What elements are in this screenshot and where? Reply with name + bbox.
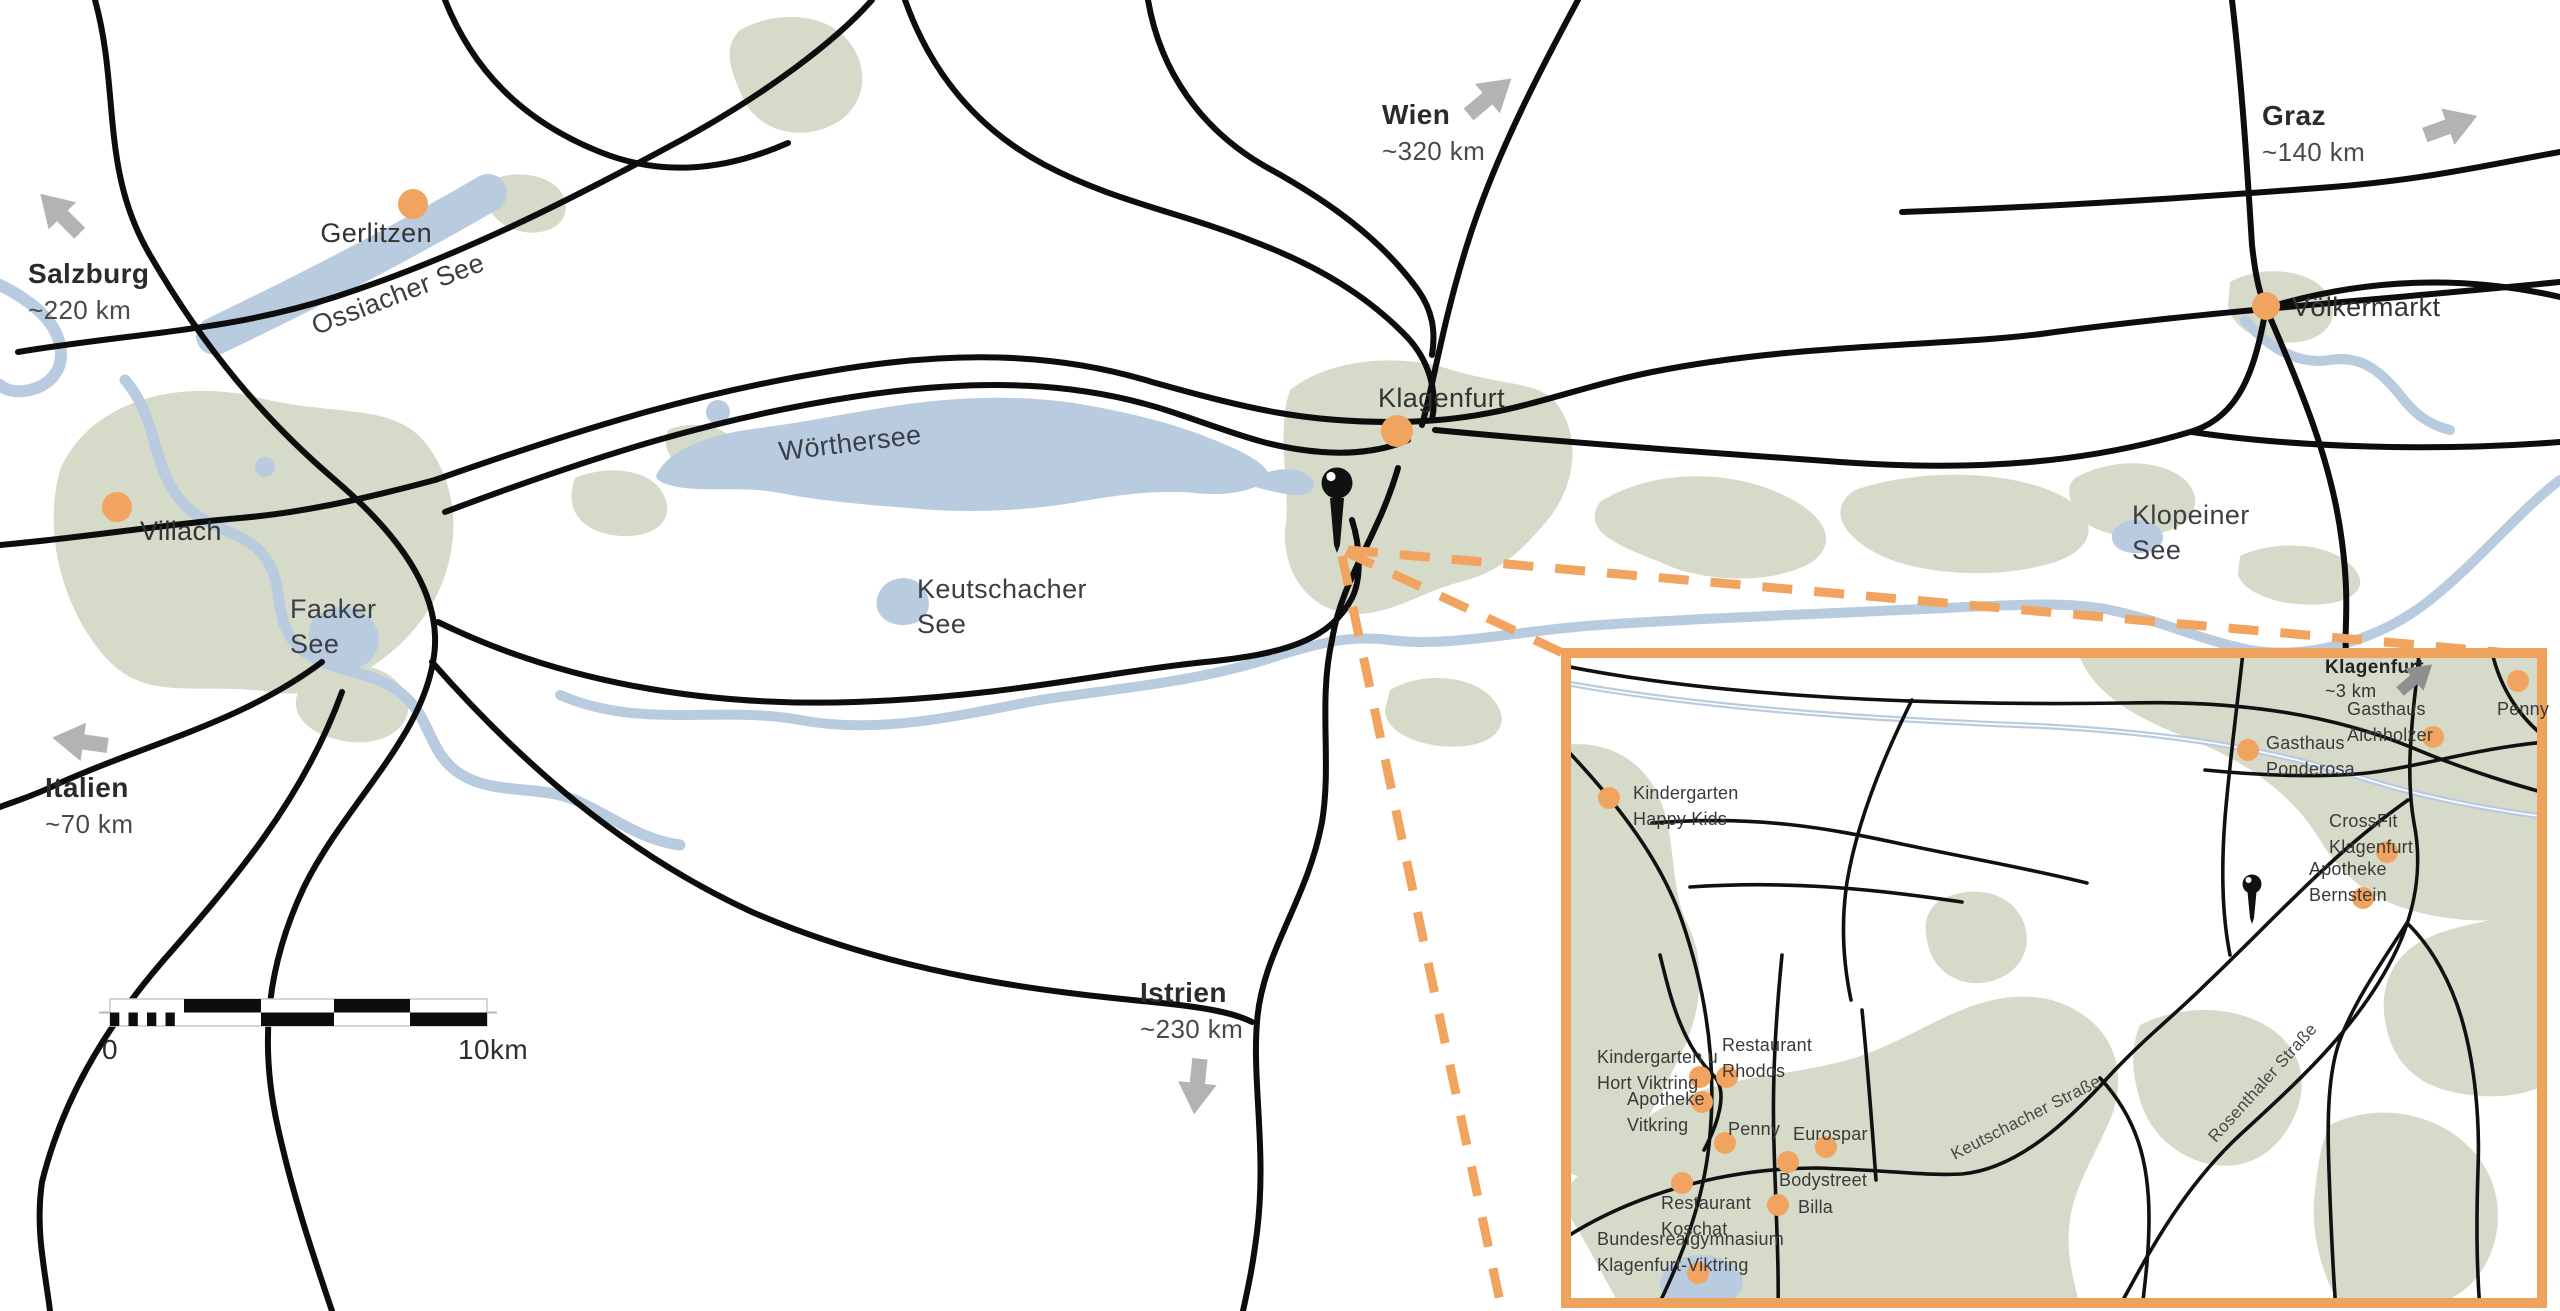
city-label-villach: Villach [140, 514, 222, 549]
poi-label-kindergarten-happy-kids-0: Kindergarten Happy Kids [1633, 780, 1738, 832]
poi-label-apotheke-vitkring-8: Apotheke Vitkring [1627, 1086, 1705, 1138]
poi-dot-billa-12 [1767, 1194, 1789, 1216]
scale-start-label: 0 [102, 1034, 118, 1066]
direction-distance-istrien: ~230 km [1140, 1012, 1243, 1046]
direction-distance-graz: ~140 km [2262, 135, 2365, 169]
poi-label-bundesrealgymnasium-klagenfurt-viktring-14: Bundesrealgymnasium Klagenfurt-Viktring [1597, 1226, 1784, 1278]
direction-arrow-icon-istrien [1172, 1056, 1223, 1116]
direction-distance-wien: ~320 km [1382, 134, 1485, 168]
poi-dot-gasthaus-ponderosa-1 [2237, 739, 2259, 761]
scale-end-label: 10km [458, 1034, 528, 1066]
street-label-rosenthaler-straße: Rosenthaler Straße [2204, 1020, 2321, 1147]
direction-istrien: Istrien~230 km [1140, 975, 1243, 1046]
poi-dot-kindergarten-happy-kids-0 [1598, 787, 1620, 809]
direction-graz: Graz~140 km [2262, 98, 2365, 169]
city-dot-völkermarkt [2252, 292, 2280, 320]
poi-label-crossfit-klagenfurt-4: CrossFit Klagenfurt [2329, 808, 2413, 860]
poi-label-restaurant-rhodos-7: Restaurant Rhodos [1722, 1032, 1812, 1084]
map-canvas: GerlitzenVillachKlagenfurtVölkermarkt Os… [0, 0, 2560, 1311]
direction-distance-italien: ~70 km [45, 807, 133, 841]
poi-label-penny-3: Penny [2497, 696, 2549, 722]
poi-label-bodystreet-11: Bodystreet [1779, 1167, 1867, 1193]
city-label-klagenfurt: Klagenfurt [1378, 381, 1505, 416]
city-label-gerlitzen: Gerlitzen [320, 216, 432, 251]
direction-name-graz: Graz [2262, 98, 2365, 135]
city-label-völkermarkt: Völkermarkt [2292, 290, 2440, 325]
labels-layer: GerlitzenVillachKlagenfurtVölkermarkt Os… [0, 0, 2560, 1311]
direction-salzburg: Salzburg~220 km [28, 256, 149, 327]
street-label-keutschacher-straße: Keutschacher Straße [1948, 1072, 2104, 1165]
poi-label-eurospar-10: Eurospar [1793, 1121, 1868, 1147]
city-dot-klagenfurt [1381, 415, 1413, 447]
direction-distance-salzburg: ~220 km [28, 293, 149, 327]
poi-label-penny-9: Penny [1728, 1116, 1780, 1142]
poi-label-gasthaus-ponderosa-1: Gasthaus Ponderosa [2266, 730, 2355, 782]
direction-arrow-icon-salzburg [24, 177, 95, 248]
lake-label-klopeiner-see: Klopeiner See [2132, 498, 2250, 567]
direction-arrow-icon-graz [2417, 94, 2485, 155]
lake-label-faaker-see: Faaker See [290, 592, 376, 661]
poi-label-gasthaus-aichholzer-2: Gasthaus Aichholzer [2347, 696, 2433, 748]
direction-name-italien: Italien [45, 770, 133, 807]
direction-italien: Italien~70 km [45, 770, 133, 841]
poi-dot-penny-3 [2507, 670, 2529, 692]
city-dot-villach [102, 492, 132, 522]
direction-name-istrien: Istrien [1140, 975, 1243, 1012]
city-dot-gerlitzen [398, 189, 428, 219]
poi-label-billa-12: Billa [1798, 1194, 1833, 1220]
poi-label-apotheke-bernstein-5: Apotheke Bernstein [2309, 856, 2387, 908]
lake-label-wörthersee: Wörthersee [777, 417, 924, 469]
direction-name-salzburg: Salzburg [28, 256, 149, 293]
lake-label-keutschacher-see: Keutschacher See [917, 572, 1087, 641]
lake-label-ossiacher-see: Ossiacher See [307, 245, 490, 343]
direction-arrow-icon-italien [49, 715, 111, 767]
